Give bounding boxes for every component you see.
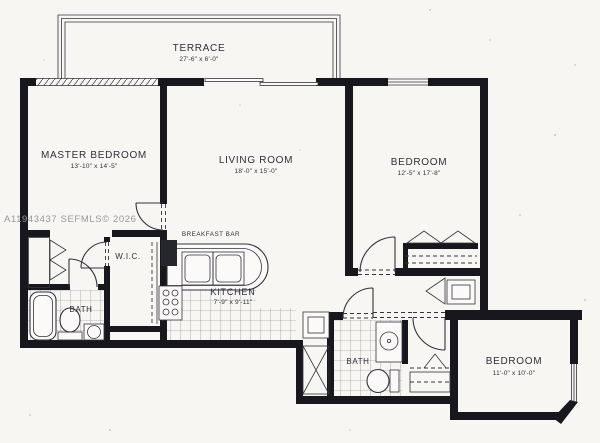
bedroom-right-dims: 12'-5" x 17'-8": [398, 170, 441, 177]
mls-watermark: A11943437 SEFMLS© 2026: [4, 214, 137, 225]
bedroom-bottom-dims: 11'-0" x 10'-0": [493, 370, 536, 377]
kitchen-dims: 7'-9" x 9'-11": [214, 299, 253, 306]
master-window: [36, 78, 158, 86]
master-bedroom-door: [136, 203, 163, 230]
vanity-sink-second: [376, 322, 402, 362]
floor-plan-image: TERRACE 27'-6" x 6'-0" MASTER BEDROOM 13…: [0, 0, 600, 443]
range-stove: [159, 286, 182, 320]
linen-closet: [410, 354, 452, 392]
master-closet: [29, 238, 50, 288]
vanity-sink-master: [84, 324, 104, 340]
living-room-label: LIVING ROOM: [219, 155, 293, 166]
bedroom-window-top: [388, 79, 428, 85]
bedroom-right-label: BEDROOM: [391, 157, 448, 168]
refrigerator: [161, 240, 177, 266]
master-bath-label: BATH: [69, 305, 92, 314]
windows: [36, 78, 577, 402]
terrace-dims: 27'-6" x 6'-0": [179, 56, 219, 63]
toilet-second: [367, 370, 399, 393]
living-room-dims: 18'-0" x 15'-0": [235, 168, 278, 175]
ac-unit: [303, 312, 329, 338]
master-bath-door: [69, 259, 97, 287]
master-bedroom-dims: 13'-10" x 14'-5": [71, 163, 118, 170]
wic-closet-rod: [152, 242, 157, 324]
bedroom-bottom-door: [413, 318, 445, 350]
bedroom-right-door: [360, 237, 395, 272]
master-bedroom-label: MASTER BEDROOM: [41, 150, 147, 161]
master-closet-bifold-doors: [50, 240, 66, 280]
door-openings: [106, 204, 446, 318]
terrace-sliding-door: [205, 79, 318, 86]
wic-label: W.I.C.: [115, 252, 140, 261]
kitchen-label: KITCHEN: [210, 287, 255, 297]
utility-closet-x: [303, 346, 329, 394]
washer-dryer: [447, 280, 475, 304]
bathtub: [30, 292, 56, 340]
bedroom-window-right: [572, 364, 577, 402]
terrace-label: TERRACE: [173, 43, 226, 54]
laundry-door: [426, 278, 445, 304]
breakfast-bar-label: BREAKFAST BAR: [182, 231, 240, 238]
second-bath-label: BATH: [346, 357, 369, 366]
floor-plan-svg: TERRACE 27'-6" x 6'-0" MASTER BEDROOM 13…: [0, 0, 600, 443]
bedroom-bottom-label: BEDROOM: [486, 356, 543, 367]
